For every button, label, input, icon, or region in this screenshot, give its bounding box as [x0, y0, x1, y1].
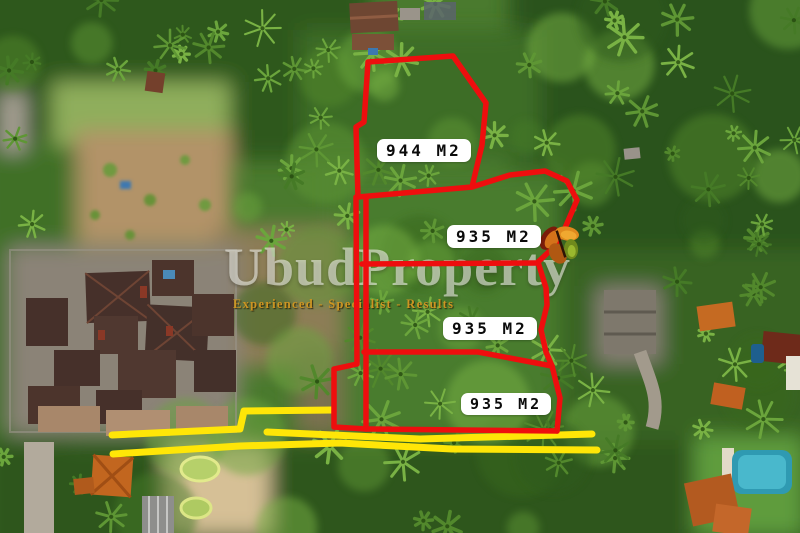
plot-area-label-944: 944 M2: [377, 139, 471, 162]
plot-area-label-935-1: 935 M2: [447, 225, 541, 248]
aerial-photo-scene: UbudProperty Experienced - Specialist - …: [0, 0, 800, 533]
plot-divider-line-1: [362, 263, 538, 264]
butterfly-icon: [536, 216, 586, 270]
annotation-overlay: [0, 0, 800, 533]
plot-area-label-935-3: 935 M2: [461, 393, 551, 415]
yellow-road-line: [113, 443, 597, 454]
plot-divider-line-2: [364, 352, 552, 366]
plot-outline-944: [356, 56, 486, 197]
plot-right-boundary: [472, 171, 577, 431]
access-strip-left-boundary: [334, 197, 366, 429]
plot-area-label-935-2: 935 M2: [443, 317, 537, 340]
plot-bottom-boundary: [366, 429, 557, 431]
